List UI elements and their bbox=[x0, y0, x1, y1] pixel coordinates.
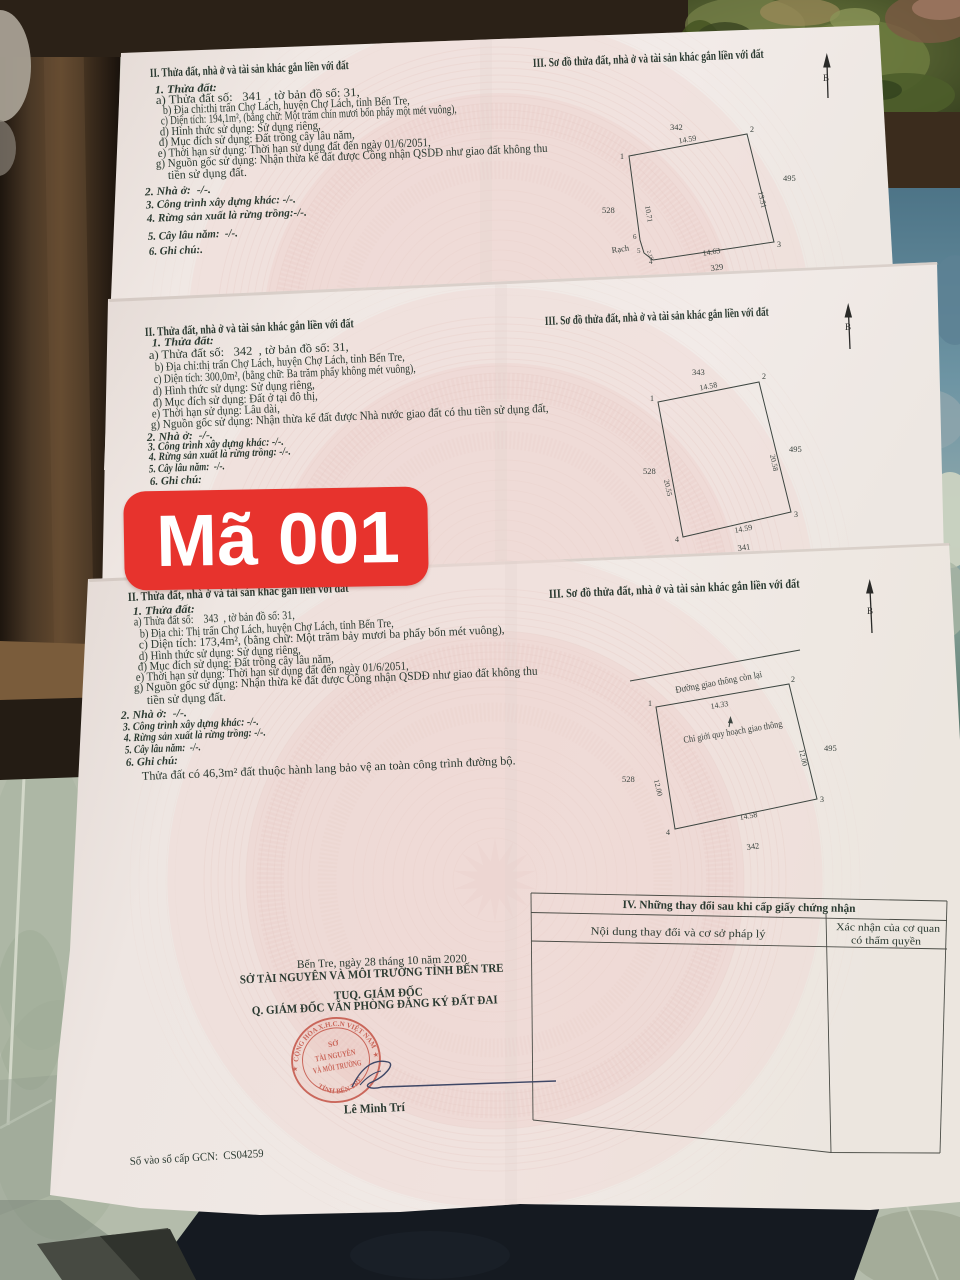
svg-text:3: 3 bbox=[794, 510, 798, 519]
svg-text:342: 342 bbox=[670, 122, 683, 132]
svg-text:6. Ghi chú:: 6. Ghi chú: bbox=[150, 474, 202, 488]
svg-text:Xác nhận của cơ quan: Xác nhận của cơ quan bbox=[836, 922, 941, 935]
svg-text:342: 342 bbox=[746, 840, 760, 852]
svg-text:4: 4 bbox=[675, 535, 679, 544]
svg-text:341: 341 bbox=[737, 541, 751, 553]
svg-text:495: 495 bbox=[824, 743, 837, 753]
svg-text:có thẩm quyền: có thẩm quyền bbox=[851, 935, 922, 947]
svg-text:528: 528 bbox=[622, 774, 635, 784]
svg-text:4: 4 bbox=[666, 828, 670, 837]
svg-text:2: 2 bbox=[791, 675, 795, 684]
svg-text:3: 3 bbox=[777, 240, 781, 249]
svg-text:3: 3 bbox=[820, 795, 824, 804]
svg-text:1: 1 bbox=[620, 152, 624, 161]
svg-text:Lê Minh Trí: Lê Minh Trí bbox=[344, 1100, 406, 1117]
svg-text:495: 495 bbox=[789, 444, 802, 454]
svg-text:329: 329 bbox=[710, 261, 724, 273]
svg-text:B: B bbox=[867, 606, 873, 616]
svg-text:528: 528 bbox=[602, 205, 615, 215]
svg-text:528: 528 bbox=[643, 466, 656, 476]
svg-text:5: 5 bbox=[637, 247, 641, 255]
svg-text:6. Ghi chú:.: 6. Ghi chú:. bbox=[149, 244, 203, 258]
svg-text:2: 2 bbox=[762, 372, 766, 381]
svg-text:B: B bbox=[823, 73, 829, 83]
svg-text:2: 2 bbox=[750, 125, 754, 134]
svg-text:343: 343 bbox=[692, 367, 705, 377]
svg-text:B: B bbox=[845, 322, 851, 332]
svg-text:1: 1 bbox=[648, 699, 652, 708]
svg-text:1: 1 bbox=[650, 394, 654, 403]
svg-text:495: 495 bbox=[783, 173, 796, 183]
svg-text:6: 6 bbox=[633, 233, 637, 241]
